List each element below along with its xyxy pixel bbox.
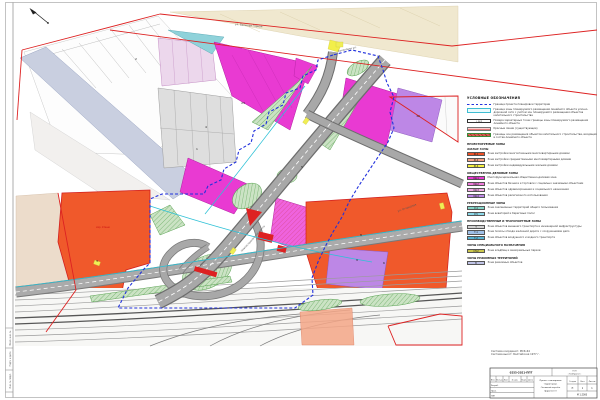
zone-number: 2: [135, 57, 137, 61]
zone-number: 12: [416, 114, 420, 118]
stamp-col-header: Лист: [504, 380, 509, 382]
legend-swatch: • А-1: [467, 119, 491, 123]
legend-section-header: ЗОНЫ СПЕЦИАЛЬНОГО НАЗНАЧЕНИЯ: [467, 243, 598, 247]
legend-swatch: ОД-4: [467, 194, 485, 198]
legend-label: Границы зон размещения объектов капиталь…: [494, 133, 599, 139]
legend-zone-item: СН-2Зона кладбищ и мемориальных парков: [467, 249, 598, 253]
legend-zone-item: Т-2Зона объектов воздушного и водного тр…: [467, 236, 598, 240]
legend-swatch: ОД-3: [467, 188, 485, 192]
legend-swatch: ОД-1: [467, 176, 485, 180]
legend-swatch: Т-2: [467, 236, 485, 240]
legend-zone-item: ОД-1Многофункциональная общественно-дело…: [467, 176, 598, 180]
stamp-title: территории.: [544, 384, 558, 386]
legend-zone-item: ОД-2Зона объектов бизнеса и торговли с с…: [467, 182, 598, 186]
legend-section-header: ПРОЕКТИРУЕМЫЕ ЗОНЫ: [467, 142, 598, 146]
stamp-role: Разраб.: [491, 384, 499, 387]
legend-label: Зона объектов воздушного и водного транс…: [488, 236, 555, 239]
legend-zone-item: ОД-3Зона объектов здравоохранения и соци…: [467, 188, 598, 192]
stamp-sheets-label: Листов: [589, 381, 596, 383]
legend-label: Многофункциональная общественно-деловая …: [488, 176, 557, 179]
legend-section-header: РЕКРЕАЦИОННЫЕ ЗОНЫ: [467, 201, 598, 205]
legend-swatch: Ж-1: [467, 152, 485, 156]
legend-section-header: ОБЩЕСТВЕННО-ДЕЛОВЫЕ ЗОНЫ: [467, 171, 598, 175]
stamp-role: Пров.: [491, 390, 497, 392]
legend-label: Зона полосы отвода железной дороги с соо…: [488, 230, 570, 233]
legend-zone-item: ОД-4Зона объектов религиозного использов…: [467, 194, 598, 198]
legend-label: Зона режимных объектов: [488, 261, 523, 264]
legend-label: Зона объектов здравоохранения и социальн…: [488, 188, 569, 191]
red-note-label: мкр. Улеши: [96, 226, 110, 229]
legend-swatch: Т: [467, 225, 485, 229]
stamp-col-header: Дата: [528, 380, 533, 382]
stamp-org: ООО: [572, 371, 577, 373]
legend-label: Граница зоны планируемого размещения лин…: [494, 108, 599, 117]
stamp-col-header: Изм.: [491, 380, 496, 382]
legend-swatch: [467, 133, 491, 137]
zone-number: 9: [356, 258, 358, 262]
stamp-title: Проект планировки: [540, 380, 562, 382]
legend-swatch: Ж-2: [467, 158, 485, 162]
legend-symbol-item: Граница проекта планировки территории: [467, 103, 598, 107]
stamp-org: «ГеоПроект»: [568, 374, 582, 376]
legend-zone-item: Ж-2Зона застройки среднеэтажными многокв…: [467, 158, 598, 162]
legend-label: Зона объектов религиозного использования: [488, 194, 548, 197]
legend-swatch: [467, 103, 491, 107]
legend-label: Красные линии (существующие): [494, 127, 538, 130]
legend-swatch: ОД-2: [467, 182, 485, 186]
legend-title: УСЛОВНЫЕ ОБОЗНАЧЕНИЯ: [467, 96, 598, 100]
stamp-role: ГИП: [491, 396, 496, 398]
stamp-sheet-label: Лист: [580, 381, 585, 383]
legend-label: Зона застройки индивидуальными жилыми до…: [488, 164, 558, 167]
legend-label: Зона акваторий и береговых полос: [488, 212, 536, 215]
stamp-col-header: Кол.уч: [496, 380, 502, 382]
legend-label: Зона объектов бизнеса и торговли с социа…: [488, 182, 584, 185]
legend-label: Зона объектов внешнего транспорта и инже…: [488, 225, 582, 228]
legend-label: Граница проекта планировки территории: [494, 103, 551, 106]
legend-symbol-item: Граница зоны планируемого размещения лин…: [467, 108, 598, 117]
legend-label: Зона кладбищ и мемориальных парков: [488, 249, 541, 252]
legend-section-header: ЗОНЫ РЕЖИМНЫХ ТЕРРИТОРИЙ: [467, 256, 598, 260]
zone-number: 1: [196, 147, 198, 151]
legend-label: Зона застройки многоэтажными многокварти…: [488, 152, 570, 155]
zone-number: 3: [96, 259, 98, 263]
zone-number: 8: [360, 233, 362, 237]
margin-frame-label: Инв. № подл.: [9, 373, 12, 388]
legend-zone-item: ТЗона объектов внешнего транспорта и инж…: [467, 225, 598, 229]
legend-zone-item: ВЗона режимных объектов: [467, 261, 598, 265]
zone-number: 5: [301, 165, 303, 169]
zone-number: 23: [241, 101, 245, 105]
legend-swatch: [467, 127, 491, 131]
legend-symbol-item: Границы зон размещения объектов капиталь…: [467, 133, 598, 139]
stamp-col-header: № док.: [512, 379, 519, 382]
legend-label: Зона озеленённых территорий общего польз…: [488, 206, 559, 209]
legend-zone-item: Ж-1Зона застройки многоэтажными многоква…: [467, 152, 598, 156]
coordinate-notes: Система координат: МСК-64 Система высот:…: [491, 350, 595, 357]
zone-zh2-salmon: [300, 308, 354, 345]
legend-zone-item: Р-4Зона озеленённых территорий общего по…: [467, 206, 598, 210]
margin-frame-label: Взам. инв. №: [9, 331, 12, 346]
legend-section-header: ПРОИЗВОДСТВЕННЫЕ И ТРАНСПОРТНЫЕ ЗОНЫ: [467, 219, 598, 223]
legend-label: Номера характерных точек границы зоны пл…: [494, 119, 599, 125]
legend-symbol-item: • А-1Номера характерных точек границы зо…: [467, 119, 598, 125]
legend-zone-item: Р-5Зона акваторий и береговых полос: [467, 212, 598, 216]
stamp-title: Основной чертёж: [541, 386, 561, 389]
plan-sheet: Соколовая ул.ул. Большая ГорнаяНовоастра…: [0, 0, 600, 400]
stamp-stage-label: Стадия: [569, 381, 576, 383]
legend-label: Зона застройки среднеэтажными многокварт…: [488, 158, 572, 161]
legend-swatch: Р-5: [467, 212, 485, 216]
legend-swatch: [467, 108, 491, 112]
stamp-doc-number: 0255-2021-ППТ: [510, 371, 533, 375]
zone-number: 4: [205, 125, 207, 129]
legend-swatch: СН-2: [467, 249, 485, 253]
note-line: Система высот: Балтийская 1977 г.: [491, 353, 595, 356]
margin-labels: Взам. инв. №Подп. и датаИнв. № подл.: [9, 331, 12, 389]
legend-subsection-header: ЖИЛЫЕ ЗОНЫ: [467, 148, 598, 151]
title-block: 0255-2021-ППТООО«ГеоПроект»Изм.Кол.учЛис…: [490, 368, 597, 398]
legend-zone-item: Ж-4Зона застройки индивидуальными жилыми…: [467, 164, 598, 168]
stamp-scale: М 1:2000: [577, 394, 588, 397]
legend-swatch: Ж-4: [467, 164, 485, 168]
legend-swatch: Т-1: [467, 230, 485, 234]
legend-zone-item: Т-1Зона полосы отвода железной дороги с …: [467, 230, 598, 234]
stamp-col-header: Подп.: [521, 380, 527, 382]
zone-gray-parcels: [158, 88, 236, 168]
legend-swatch: Р-4: [467, 206, 485, 210]
legend: УСЛОВНЫЕ ОБОЗНАЧЕНИЯ Граница проекта пла…: [467, 96, 598, 267]
legend-symbol-item: Красные линии (существующие): [467, 127, 598, 131]
zone-number: 6: [383, 261, 385, 265]
zone-od4-purple-bottom: [326, 248, 388, 290]
stamp-title: (фрагмент): [544, 391, 557, 393]
margin-frame-label: Подп. и дата: [9, 351, 12, 367]
legend-swatch: В: [467, 261, 485, 265]
